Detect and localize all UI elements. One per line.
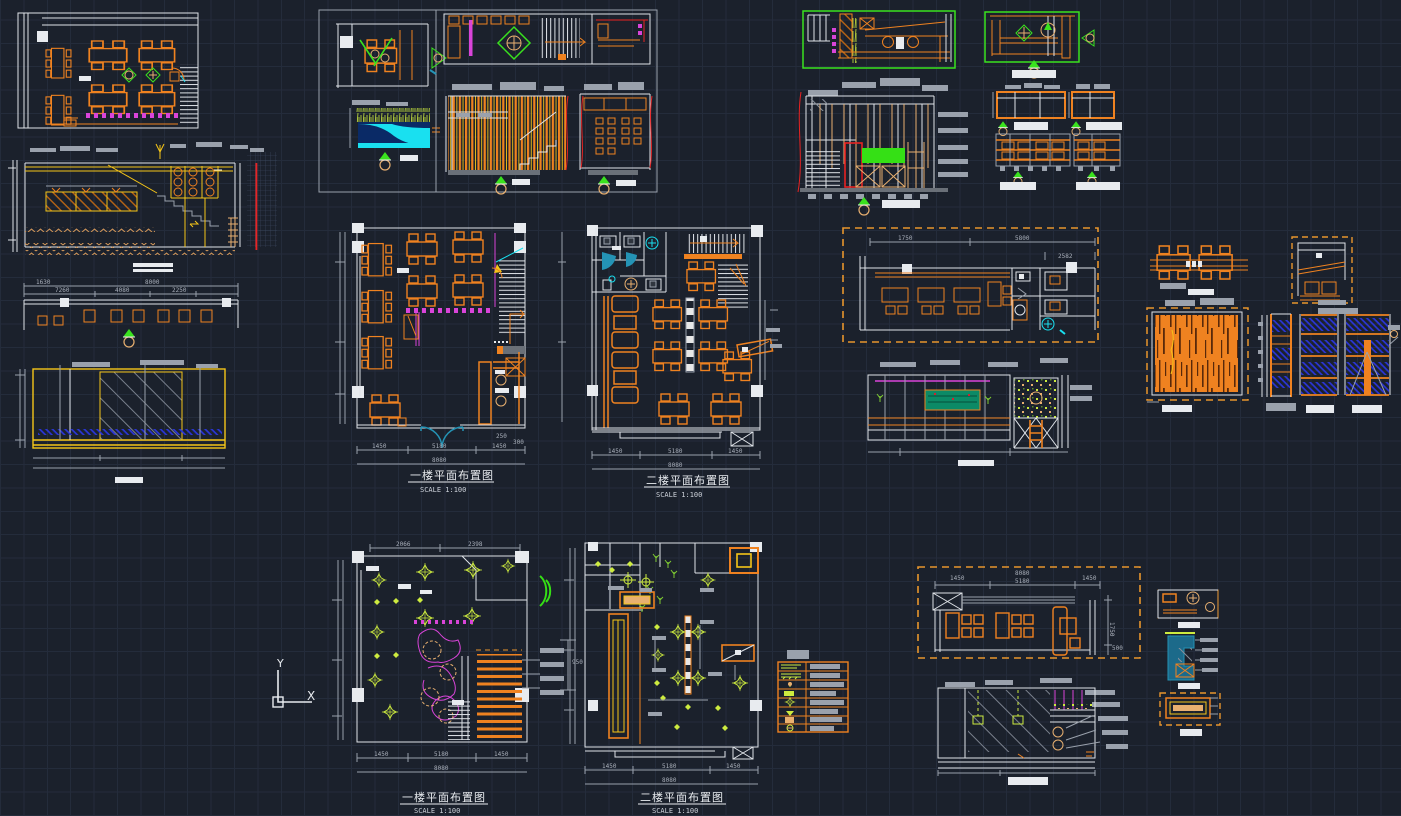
detail-elevation-grid[interactable]: [580, 82, 652, 194]
dim: 1750: [1108, 622, 1115, 637]
dim: 1450: [602, 763, 617, 770]
detail-plan-corner[interactable]: [592, 14, 650, 64]
dim: 1450: [728, 448, 743, 455]
dim: 5180: [1015, 578, 1030, 585]
elevation-left-mirror[interactable]: [15, 360, 225, 483]
detail-section-steel[interactable]: [1165, 633, 1218, 689]
floor-plan-2[interactable]: 1450 5180 1450 8080 二楼平面布置图 SCALE 1:100: [587, 225, 782, 499]
rack-3[interactable]: [1345, 314, 1400, 395]
plan-dashed-lounge[interactable]: 1450 8080 5180 1450 1750 500: [918, 567, 1140, 658]
dim: 8080: [1015, 570, 1030, 577]
cad-model-space[interactable]: 1630 8000 7260 4080 2250: [0, 0, 1401, 816]
elevation-wine-racks[interactable]: [1258, 300, 1400, 413]
dim: 7260: [55, 287, 70, 294]
detail-cove-light[interactable]: [1160, 693, 1220, 736]
green-arc-lamp: [540, 576, 550, 606]
ucs-icon: Y X: [273, 657, 315, 707]
elevation-stair-wall[interactable]: [798, 78, 968, 215]
plan-dashed-dining[interactable]: 1750 5800 2582: [843, 228, 1098, 342]
dim: 950: [572, 659, 583, 666]
plan-joined-tables[interactable]: [1150, 246, 1248, 295]
dim: 8000: [145, 279, 160, 286]
floor-plan-2-title: 二楼平面布置图: [646, 473, 730, 487]
detail-elevation-slats[interactable]: [446, 82, 568, 194]
linear-light-box: [620, 592, 654, 608]
detail-group-top-middle[interactable]: [319, 10, 657, 194]
elevation-left-bar[interactable]: [8, 142, 277, 272]
detail-shelf-bracket[interactable]: [1292, 237, 1352, 303]
dim: 5180: [668, 448, 683, 455]
dim: 2582: [1058, 253, 1073, 260]
ucs-y-label: Y: [276, 657, 284, 670]
detail-plan-small[interactable]: [1158, 590, 1218, 628]
dim: 500: [1112, 645, 1123, 652]
rack-1[interactable]: [1271, 314, 1291, 397]
rack-2[interactable]: [1300, 314, 1338, 395]
detail-wood-panel[interactable]: [1147, 298, 1248, 412]
dim: 5800: [1015, 235, 1030, 242]
dim: 2398: [468, 541, 483, 548]
booths: [604, 296, 638, 428]
floor-plan-1-scale: SCALE 1:100: [420, 486, 466, 494]
dim: 8080: [668, 462, 683, 469]
plan-top-left[interactable]: [18, 13, 198, 128]
elevation-lounge-wall[interactable]: [938, 678, 1128, 785]
ceiling-plan-2-title: 二楼平面布置图: [640, 790, 724, 804]
plant-wall: [1014, 378, 1058, 418]
dim: 1450: [492, 443, 507, 450]
floor-plan-2-scale: SCALE 1:100: [656, 491, 702, 499]
dim: 8080: [662, 777, 677, 784]
detail-stack-far-right[interactable]: [1158, 590, 1220, 736]
ceiling-plan-1-scale: SCALE 1:100: [414, 807, 460, 815]
plan-green-counter[interactable]: [985, 12, 1094, 78]
cabinet-elevation-1[interactable]: [996, 134, 1070, 171]
dim: 5180: [432, 443, 447, 450]
hatched-sign: [46, 186, 137, 211]
dim: 1450: [494, 751, 509, 758]
dim: 1450: [1082, 575, 1097, 582]
dim: 1450: [372, 443, 387, 450]
wc-zone: [592, 232, 666, 292]
dim: 1750: [898, 235, 913, 242]
toilet-zone: [1012, 268, 1095, 334]
light-legend[interactable]: [778, 650, 848, 732]
floor-plan-1-title: 一楼平面布置图: [410, 468, 494, 482]
dim: 250: [496, 433, 507, 440]
plan-strip-left[interactable]: 1630 8000 7260 4080 2250: [24, 279, 238, 347]
dim: 1450: [374, 751, 389, 758]
dim: 2066: [396, 541, 411, 548]
dim: 1450: [608, 448, 623, 455]
detail-water-feature[interactable]: [350, 100, 440, 170]
dim: 1630: [36, 279, 51, 286]
dim: 5180: [434, 751, 449, 758]
dim: 8080: [432, 457, 447, 464]
floor-plan-1[interactable]: 1450 5180 1450 8080 250 300 一楼平面布置图 SCAL…: [335, 223, 566, 494]
dim: 4080: [115, 287, 130, 294]
plan-green-bar[interactable]: [803, 11, 955, 68]
dim: 8080: [434, 765, 449, 772]
ceiling-plan-2-scale: SCALE 1:100: [652, 807, 698, 815]
ceiling-plan-2[interactable]: 1450 5180 1450 8080 二楼平面布置图 SCALE 1:100: [564, 542, 762, 815]
dim: 300: [513, 439, 524, 446]
ceiling-plan-1[interactable]: 2066 2398 1450 5180 1450 8080 950 一楼平面布置…: [332, 541, 583, 815]
cabinet-elevation-2[interactable]: [1074, 134, 1120, 171]
dim: 1450: [726, 763, 741, 770]
ucs-x-label: X: [307, 689, 315, 703]
shelf-section: [1050, 690, 1100, 750]
dim: 5180: [662, 763, 677, 770]
detail-plan-entry[interactable]: [444, 14, 592, 64]
rack-side: [1258, 315, 1267, 397]
ceiling-plan-1-title: 一楼平面布置图: [402, 790, 486, 804]
elevation-cabinets-right[interactable]: [993, 83, 1122, 190]
dim: 1450: [950, 575, 965, 582]
detail-plan-table[interactable]: [336, 24, 446, 88]
elevation-teal-board[interactable]: [868, 358, 1092, 466]
tall-linear-light: [609, 614, 628, 738]
stairs: [492, 248, 525, 344]
dim: 2250: [172, 287, 187, 294]
